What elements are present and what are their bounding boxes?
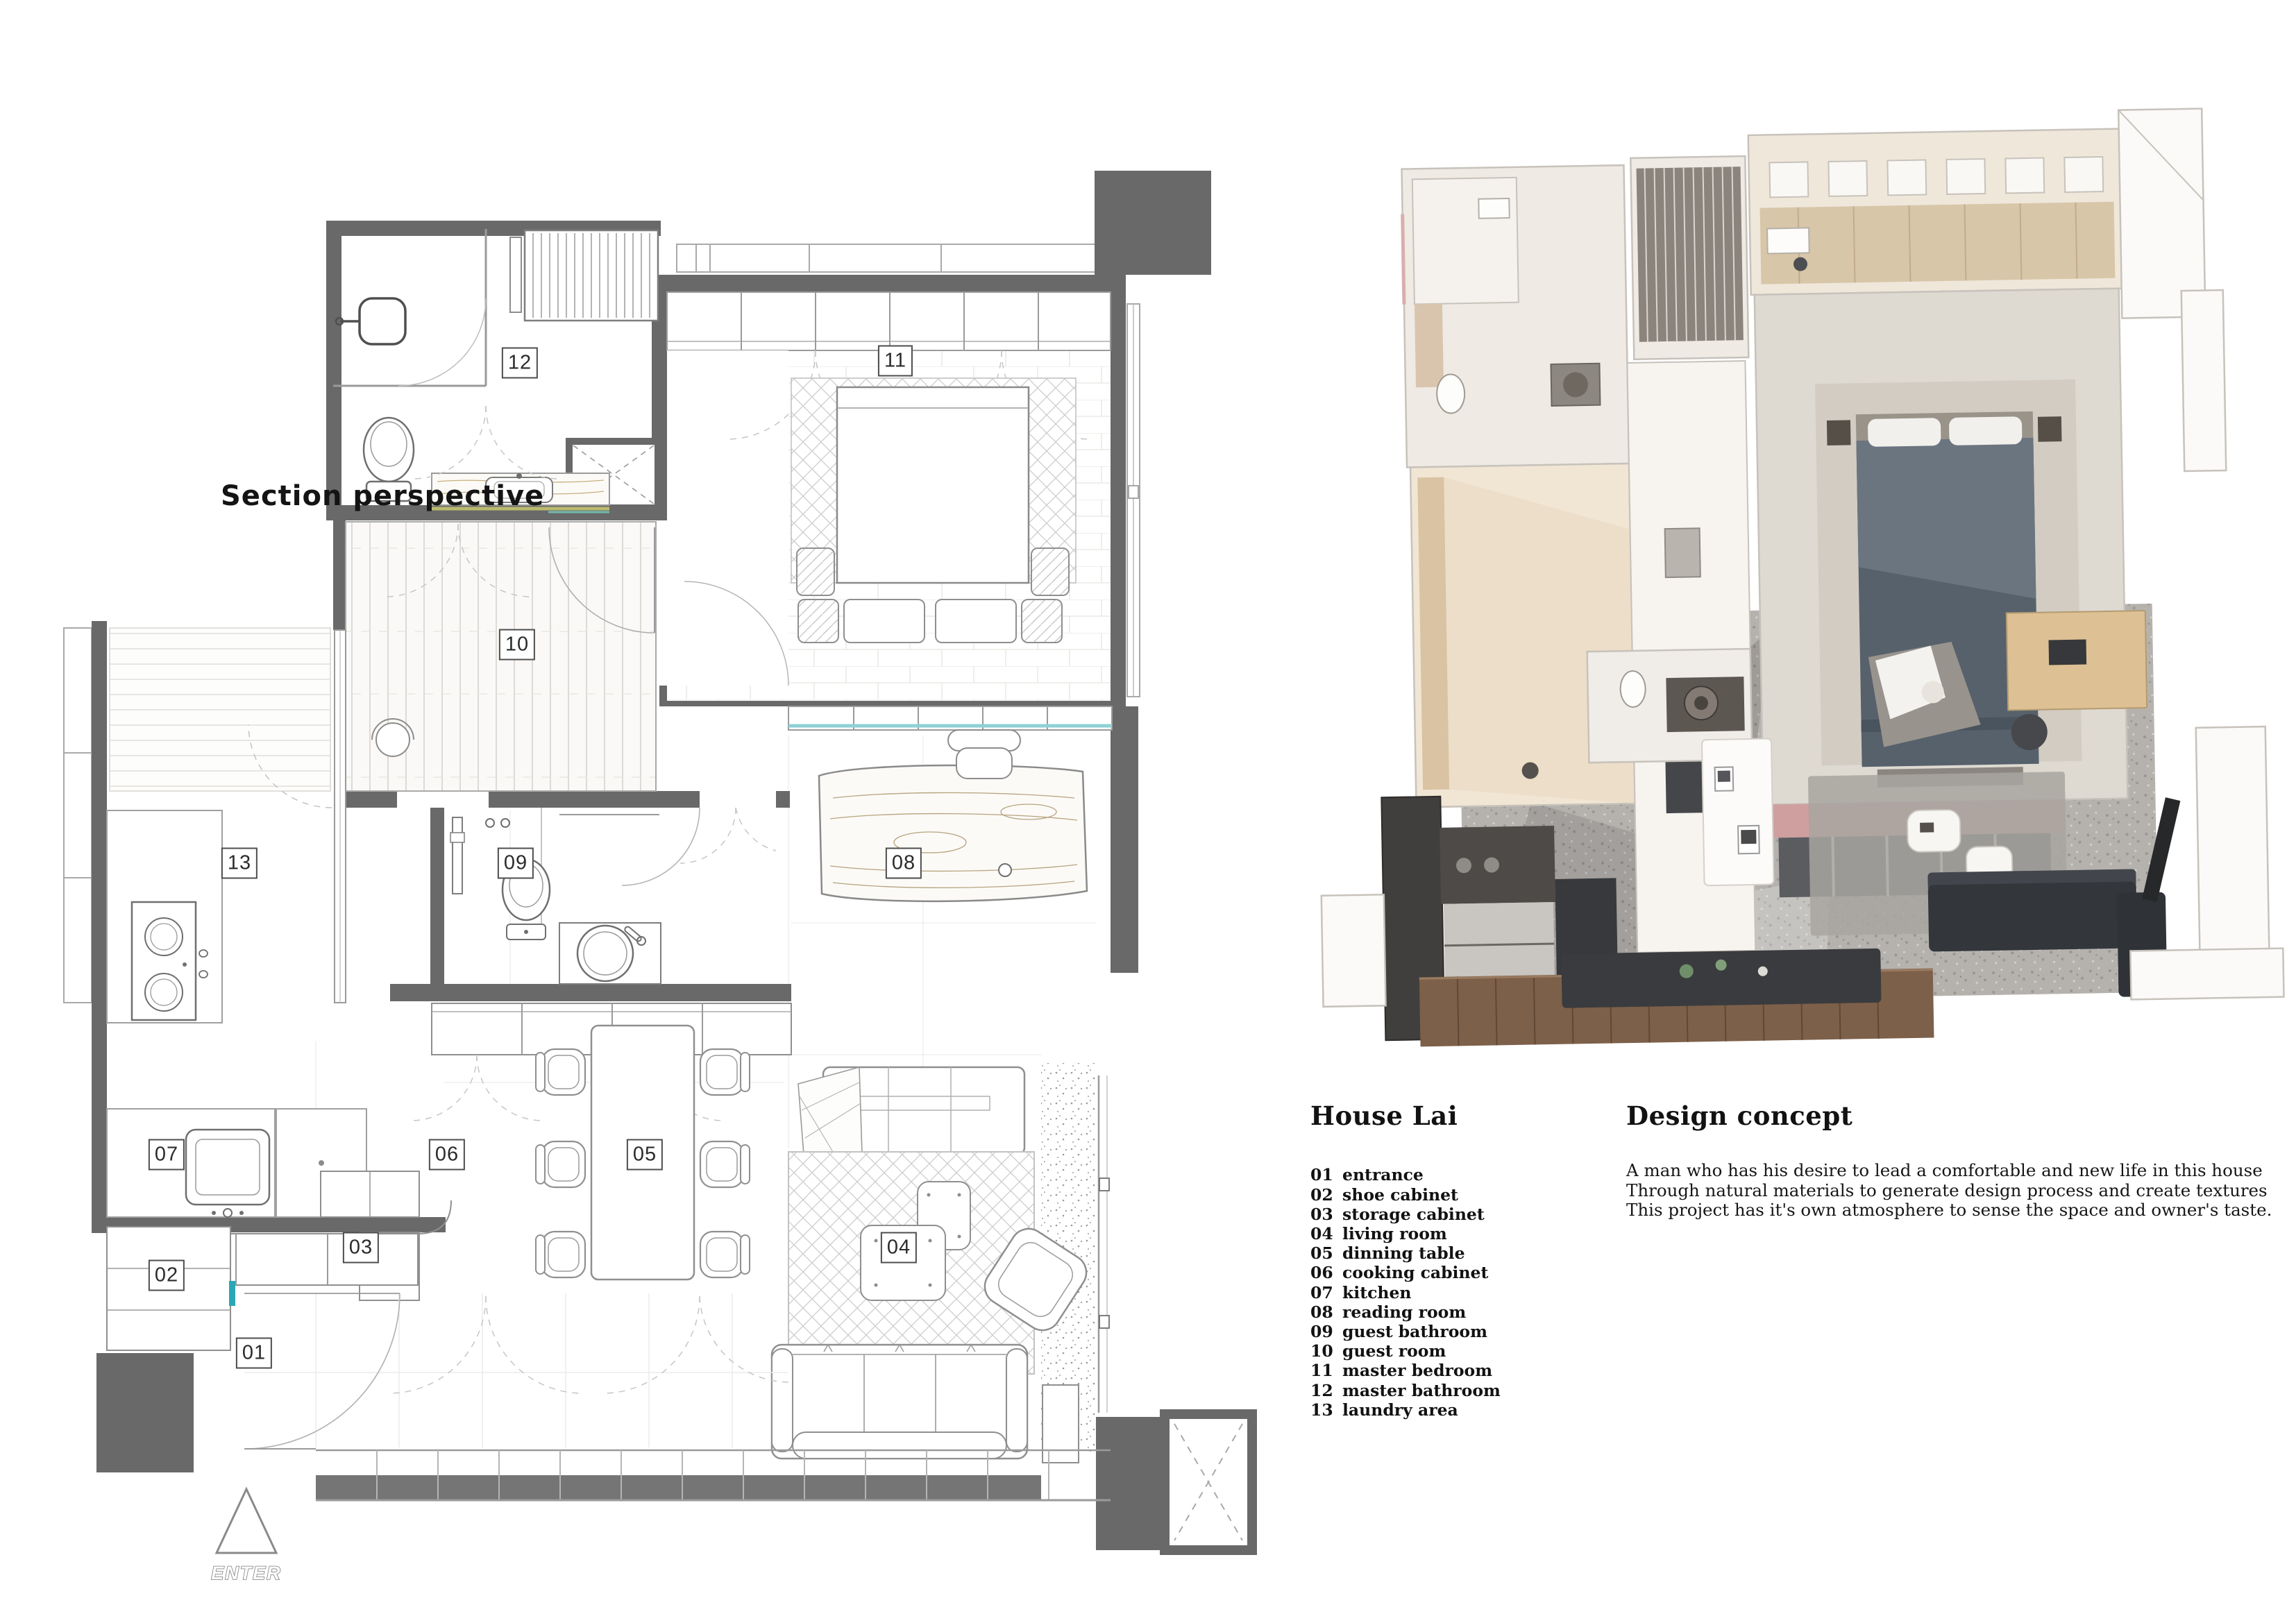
legend-item: 08reading room [1310, 1302, 1609, 1322]
legend-item-name: master bedroom [1342, 1361, 1492, 1380]
legend-list: 01entrance02shoe cabinet03storage cabine… [1310, 1165, 1609, 1420]
legend-item-code: 10 [1310, 1341, 1342, 1361]
design-concept-text: A man who has his desire to lead a comfo… [1626, 1161, 2202, 1221]
legend-item: 01entrance [1310, 1165, 1609, 1184]
legend-item-name: reading room [1342, 1302, 1466, 1322]
legend-item-name: storage cabinet [1342, 1205, 1485, 1224]
design-concept-line: A man who has his desire to lead a comfo… [1626, 1161, 2202, 1181]
room-label-05: 05 [627, 1139, 663, 1171]
legend-item: 10guest room [1310, 1341, 1609, 1361]
house-title: House Lai [1310, 1102, 1609, 1130]
legend-item-name: guest room [1342, 1341, 1446, 1361]
legend-item-code: 03 [1310, 1205, 1342, 1224]
legend-item: 07kitchen [1310, 1283, 1609, 1302]
room-label-02: 02 [149, 1260, 185, 1291]
room-label-09: 09 [498, 848, 534, 879]
design-concept-block: Design concept A man who has his desire … [1626, 1102, 2202, 1221]
room-label-03: 03 [343, 1232, 379, 1264]
room-label-06: 06 [429, 1139, 465, 1171]
legend-item-name: guest bathroom [1342, 1322, 1487, 1341]
legend-item-code: 05 [1310, 1243, 1342, 1263]
legend-item: 09guest bathroom [1310, 1322, 1609, 1341]
legend-item-name: dinning table [1342, 1243, 1465, 1263]
legend-item-name: cooking cabinet [1342, 1263, 1488, 1282]
room-label-08: 08 [886, 848, 922, 879]
legend-item-name: shoe cabinet [1342, 1185, 1458, 1205]
legend-item: 11master bedroom [1310, 1361, 1609, 1380]
legend-item: 03storage cabinet [1310, 1205, 1609, 1224]
room-label-10: 10 [499, 629, 535, 661]
legend-item-name: laundry area [1342, 1400, 1458, 1420]
legend-item-code: 12 [1310, 1381, 1342, 1400]
design-concept-title: Design concept [1626, 1102, 2202, 1130]
room-label-13: 13 [221, 848, 258, 879]
legend-item-code: 01 [1310, 1165, 1342, 1184]
legend-item-code: 06 [1310, 1263, 1342, 1282]
legend-item-name: living room [1342, 1224, 1447, 1243]
legend-item: 06cooking cabinet [1310, 1263, 1609, 1282]
room-number-labels: 01020304050607080910111213 [0, 0, 2296, 1623]
legend-item-code: 09 [1310, 1322, 1342, 1341]
legend-item: 05dinning table [1310, 1243, 1609, 1263]
presentation-board: ENTER [0, 0, 2296, 1623]
legend-item-name: entrance [1342, 1165, 1424, 1184]
room-label-11: 11 [878, 346, 913, 377]
design-concept-line: This project has it's own atmosphere to … [1626, 1200, 2202, 1221]
legend-item: 13laundry area [1310, 1400, 1609, 1420]
legend-item: 02shoe cabinet [1310, 1185, 1609, 1205]
legend-item-code: 02 [1310, 1185, 1342, 1205]
legend-item-code: 07 [1310, 1283, 1342, 1302]
legend-item-code: 13 [1310, 1400, 1342, 1420]
room-label-01: 01 [236, 1338, 272, 1369]
legend-item-code: 11 [1310, 1361, 1342, 1380]
design-concept-line: Through natural materials to generate de… [1626, 1181, 2202, 1201]
room-label-07: 07 [149, 1139, 185, 1171]
room-label-04: 04 [881, 1232, 917, 1264]
legend-item-code: 04 [1310, 1224, 1342, 1243]
legend-item-name: master bathroom [1342, 1381, 1501, 1400]
room-label-12: 12 [502, 348, 538, 379]
legend-item-code: 08 [1310, 1302, 1342, 1322]
house-legend-block: House Lai 01entrance02shoe cabinet03stor… [1310, 1102, 1609, 1420]
legend-item-name: kitchen [1342, 1283, 1412, 1302]
legend-item: 12master bathroom [1310, 1381, 1609, 1400]
legend-item: 04living room [1310, 1224, 1609, 1243]
